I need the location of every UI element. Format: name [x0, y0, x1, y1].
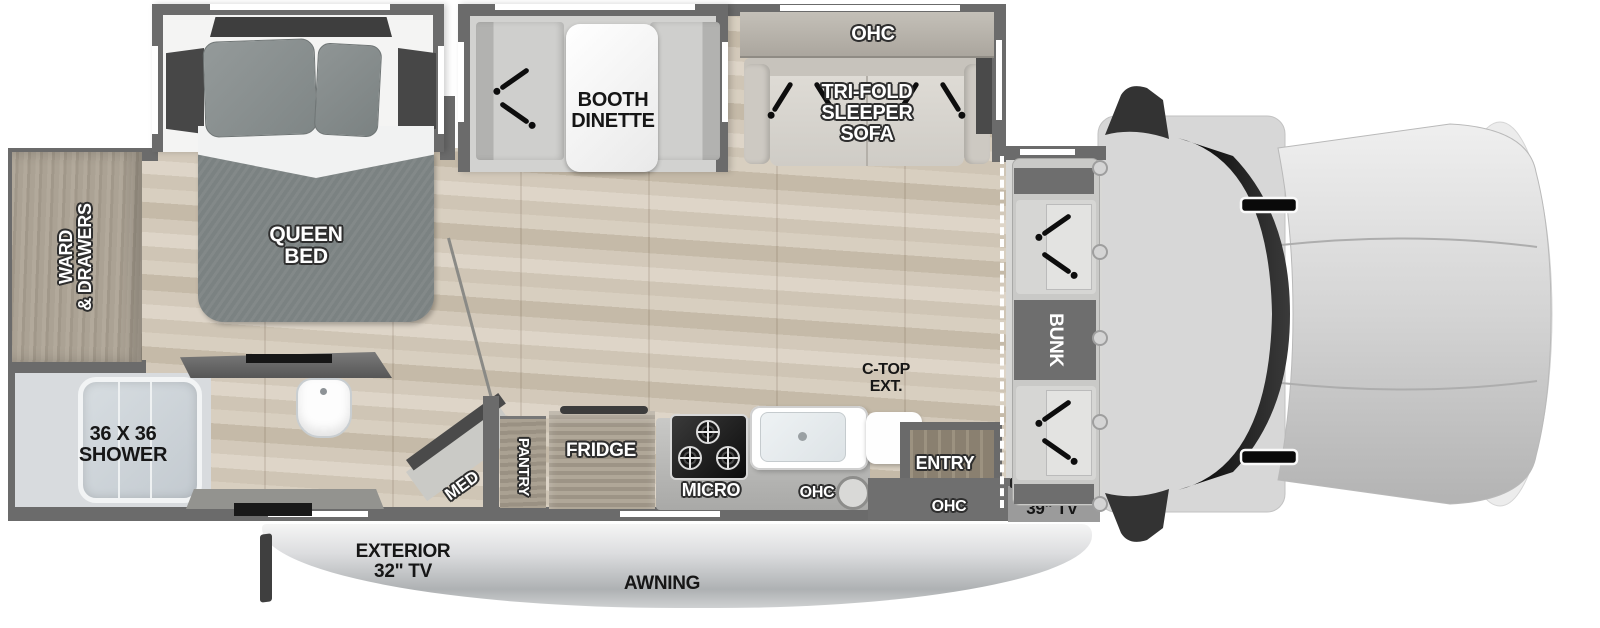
toilet — [296, 378, 352, 438]
exterior-tv-label: EXTERIOR 32" TV — [328, 542, 478, 582]
bunk-end-panel — [1014, 484, 1094, 504]
sleeper-sofa-armrest — [744, 64, 770, 164]
window-slot — [722, 42, 728, 122]
nightstand — [166, 48, 204, 134]
sleeper-sofa-label-line2: SLEEPER — [787, 103, 947, 124]
queen-bed-pillow — [202, 38, 317, 138]
toilet-flush-button — [320, 388, 327, 395]
window-slot — [458, 42, 464, 122]
sleeper-sofa-label: TRI-FOLD SLEEPER SOFA — [787, 82, 947, 144]
sofa-ohc-label-text: OHC — [833, 24, 913, 45]
side-mirror-icon — [1105, 86, 1169, 139]
bath-sink-strip — [234, 503, 312, 516]
burner-icon — [678, 446, 702, 470]
bunk-hinge-knob — [1092, 330, 1108, 346]
side-mirror-icon — [1105, 489, 1169, 542]
sleeper-sofa-label-line1: TRI-FOLD — [787, 82, 947, 103]
bunk-label-text: BUNK — [1045, 313, 1065, 367]
queen-bed-label-line2: BED — [246, 246, 366, 268]
headboard — [210, 17, 392, 37]
sleeper-sofa-label-line3: SOFA — [787, 124, 947, 145]
window-slot — [438, 46, 444, 134]
fridge-label-text: FRIDGE — [546, 441, 656, 461]
window-slot — [152, 46, 158, 134]
micro-label-text: MICRO — [656, 481, 766, 500]
queen-bed-pillow — [314, 42, 383, 137]
faucet-icon — [798, 432, 807, 441]
kitchen-ohc-label: OHC — [787, 485, 847, 502]
bunk-hinge-knob — [1092, 244, 1108, 260]
entry-ohc-label-text: OHC — [919, 499, 979, 516]
hood — [1278, 124, 1551, 504]
sofa-ohc-label: OHC — [833, 24, 913, 45]
bunk-hinge-knob — [1092, 496, 1108, 512]
pantry-label: PANTRY — [503, 412, 543, 522]
ctop-label-line2: EXT. — [836, 379, 936, 396]
kitchen-ohc-label-text: OHC — [787, 485, 847, 502]
fridge-label: FRIDGE — [546, 441, 656, 461]
booth-seat — [476, 22, 564, 160]
entry-label-text: ENTRY — [895, 454, 995, 473]
burner-icon — [716, 446, 740, 470]
shower-label-line1: 36 X 36 — [43, 424, 203, 445]
shower-label-line2: SHOWER — [43, 445, 203, 466]
burner-icon — [696, 420, 720, 444]
wall — [483, 396, 499, 508]
booth-dinette-label-line2: DINETTE — [553, 111, 673, 132]
ward-drawers-label: WARD & DRAWERS — [31, 152, 121, 362]
window-slot — [1020, 149, 1075, 155]
window-slot — [620, 511, 720, 517]
nightstand — [398, 48, 436, 134]
awning-bar-endcap — [260, 533, 272, 602]
headlight-slot — [1241, 450, 1297, 464]
pantry-label-text: PANTRY — [515, 438, 531, 496]
window-slot — [780, 5, 960, 11]
dashed-bunk-line — [1000, 156, 1004, 508]
bunk-hinge-knob — [1092, 160, 1108, 176]
window-slot — [996, 40, 1002, 120]
sofa-window-panel — [976, 58, 992, 134]
bunk-hinge-knob — [1092, 414, 1108, 430]
booth-dinette-label: BOOTH DINETTE — [553, 90, 673, 132]
queen-bed-label-line1: QUEEN — [246, 224, 366, 246]
exterior-tv-label-line1: EXTERIOR — [328, 542, 478, 562]
ctop-label: C-TOP EXT. — [836, 362, 936, 395]
vanity-counter-trim — [246, 354, 332, 363]
ctop-label-line1: C-TOP — [836, 362, 936, 379]
entry-label: ENTRY — [895, 454, 995, 473]
awning-label: AWNING — [587, 574, 737, 594]
rv-floorplan-diagram: EXTERIOR 32" TV AWNING — [0, 0, 1600, 628]
fridge-handle — [560, 406, 648, 414]
ward-drawers-label-line1: WARD — [57, 152, 76, 362]
queen-bed-label: QUEEN BED — [246, 224, 366, 268]
entry-ohc-label: OHC — [919, 499, 979, 516]
exterior-tv-label-line2: 32" TV — [328, 562, 478, 582]
awning-label-text: AWNING — [587, 574, 737, 594]
micro-label: MICRO — [656, 481, 766, 500]
ward-drawers-label-line2: & DRAWERS — [76, 152, 95, 362]
booth-dinette-label-line1: BOOTH — [553, 90, 673, 111]
window-slot — [495, 4, 695, 10]
shower-label: 36 X 36 SHOWER — [43, 424, 203, 466]
window-slot — [210, 4, 390, 10]
bunk-label: BUNK — [1035, 295, 1075, 385]
headlight-slot — [1241, 198, 1297, 212]
bunk-end-panel — [1014, 168, 1094, 194]
